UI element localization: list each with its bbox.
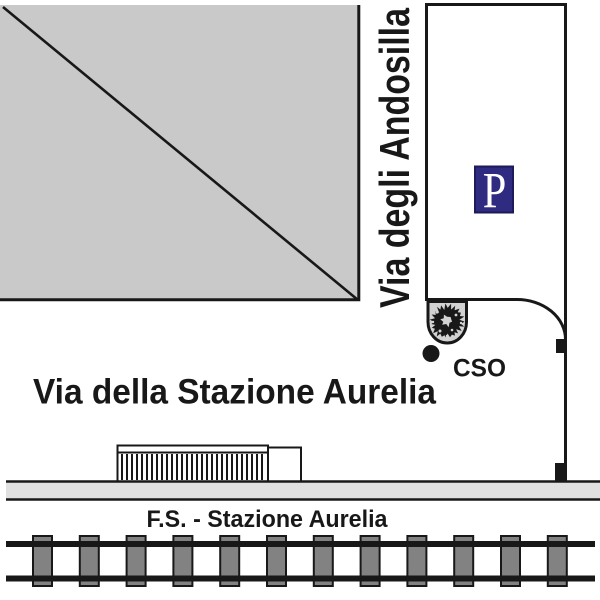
svg-text:CSO: CSO bbox=[453, 355, 506, 383]
svg-text:F.S. - Stazione Aurelia: F.S. - Stazione Aurelia bbox=[147, 506, 389, 533]
svg-text:P: P bbox=[483, 163, 507, 220]
svg-text:Via degli Andosilla: Via degli Andosilla bbox=[371, 7, 418, 308]
svg-text:Via della Stazione Aurelia: Via della Stazione Aurelia bbox=[33, 373, 437, 412]
